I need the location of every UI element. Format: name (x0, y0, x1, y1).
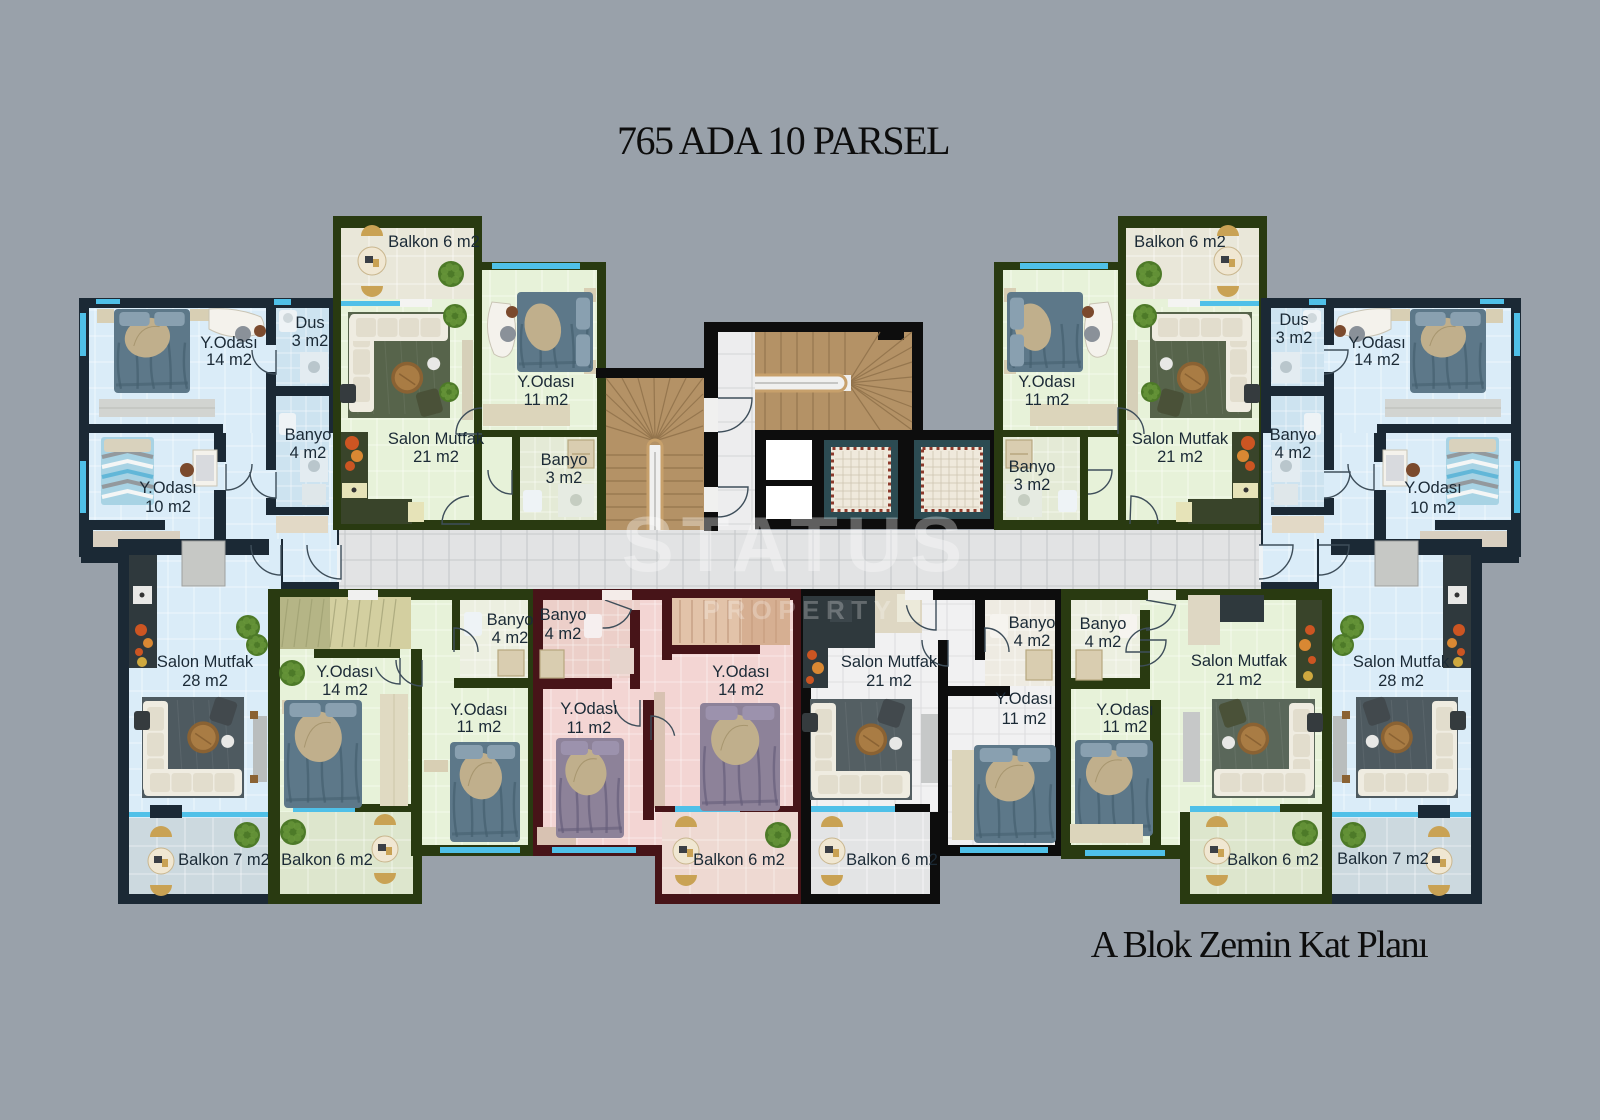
svg-text:Salon Mutfak: Salon Mutfak (157, 653, 254, 671)
svg-text:Balkon 6 m2: Balkon 6 m2 (693, 851, 785, 869)
svg-text:Salon Mutfak: Salon Mutfak (1353, 653, 1450, 671)
svg-text:Banyo: Banyo (285, 426, 332, 444)
svg-text:14 m2: 14 m2 (1354, 351, 1400, 369)
svg-text:STATUS: STATUS (622, 500, 970, 588)
svg-text:11 m2: 11 m2 (1103, 718, 1148, 736)
svg-text:765 ADA 10 PARSEL: 765 ADA 10 PARSEL (617, 118, 949, 163)
svg-text:14 m2: 14 m2 (718, 681, 764, 699)
svg-text:4 m2: 4 m2 (1014, 632, 1051, 650)
svg-text:Y.Odası: Y.Odası (1404, 479, 1461, 497)
svg-text:Dus: Dus (1279, 311, 1308, 329)
svg-text:28 m2: 28 m2 (182, 672, 228, 690)
svg-text:28 m2: 28 m2 (1378, 672, 1424, 690)
svg-text:Y.Odası: Y.Odası (139, 479, 196, 497)
svg-text:Y.Odası: Y.Odası (712, 663, 769, 681)
svg-text:Banyo: Banyo (1009, 458, 1056, 476)
svg-text:3 m2: 3 m2 (1276, 329, 1313, 347)
svg-text:Y.Odası: Y.Odası (316, 663, 373, 681)
svg-text:Banyo: Banyo (1080, 615, 1127, 633)
svg-text:Banyo: Banyo (541, 451, 588, 469)
svg-text:Balkon 7 m2: Balkon 7 m2 (1337, 850, 1429, 868)
svg-text:21 m2: 21 m2 (866, 672, 912, 690)
svg-text:10 m2: 10 m2 (1410, 499, 1456, 517)
svg-text:Y.Odası: Y.Odası (517, 373, 574, 391)
svg-text:11 m2: 11 m2 (1002, 710, 1047, 728)
svg-text:Y.Odası: Y.Odası (200, 334, 257, 352)
svg-text:Balkon 6 m2: Balkon 6 m2 (846, 851, 938, 869)
svg-text:Y.Odası: Y.Odası (450, 701, 507, 719)
svg-text:4 m2: 4 m2 (545, 625, 582, 643)
svg-text:11 m2: 11 m2 (524, 391, 569, 409)
svg-text:4 m2: 4 m2 (492, 629, 529, 647)
svg-text:10 m2: 10 m2 (145, 498, 191, 516)
svg-text:Balkon 6 m2: Balkon 6 m2 (388, 233, 480, 251)
svg-text:Balkon 7 m2: Balkon 7 m2 (178, 851, 270, 869)
svg-text:Balkon 6 m2: Balkon 6 m2 (1227, 851, 1319, 869)
svg-text:11 m2: 11 m2 (457, 718, 502, 736)
svg-text:21 m2: 21 m2 (1157, 448, 1203, 466)
svg-text:A Blok Zemin Kat Planı: A Blok Zemin Kat Planı (1091, 924, 1428, 966)
svg-text:3 m2: 3 m2 (1014, 476, 1051, 494)
svg-text:Salon Mutfak: Salon Mutfak (1132, 430, 1229, 448)
svg-text:14 m2: 14 m2 (322, 681, 368, 699)
svg-text:14 m2: 14 m2 (206, 351, 252, 369)
svg-text:4 m2: 4 m2 (1085, 633, 1122, 651)
svg-text:Y.Odası: Y.Odası (1348, 334, 1405, 352)
svg-text:Y.Odası: Y.Odası (995, 690, 1052, 708)
svg-text:Banyo: Banyo (487, 611, 534, 629)
svg-text:3 m2: 3 m2 (546, 469, 583, 487)
svg-text:Y.Odası: Y.Odası (1018, 373, 1075, 391)
svg-text:PROPERTY: PROPERTY (702, 595, 897, 625)
svg-text:4 m2: 4 m2 (1275, 444, 1312, 462)
svg-text:4 m2: 4 m2 (290, 444, 327, 462)
svg-text:Banyo: Banyo (540, 606, 587, 624)
svg-text:Y.Odası: Y.Odası (560, 700, 617, 718)
svg-text:Banyo: Banyo (1270, 426, 1317, 444)
svg-text:11 m2: 11 m2 (1025, 391, 1070, 409)
svg-text:Salon Mutfak: Salon Mutfak (388, 430, 485, 448)
svg-text:21 m2: 21 m2 (413, 448, 459, 466)
svg-text:Y.Odası: Y.Odası (1096, 701, 1153, 719)
svg-text:Balkon 6 m2: Balkon 6 m2 (1134, 233, 1226, 251)
svg-text:21 m2: 21 m2 (1216, 671, 1262, 689)
svg-text:Salon Mutfak: Salon Mutfak (1191, 652, 1288, 670)
svg-text:Dus: Dus (295, 314, 324, 332)
svg-text:Salon Mutfak: Salon Mutfak (841, 653, 938, 671)
svg-text:Balkon 6 m2: Balkon 6 m2 (281, 851, 373, 869)
svg-text:3 m2: 3 m2 (292, 332, 329, 350)
svg-text:Banyo: Banyo (1009, 614, 1056, 632)
svg-text:11 m2: 11 m2 (567, 719, 612, 737)
